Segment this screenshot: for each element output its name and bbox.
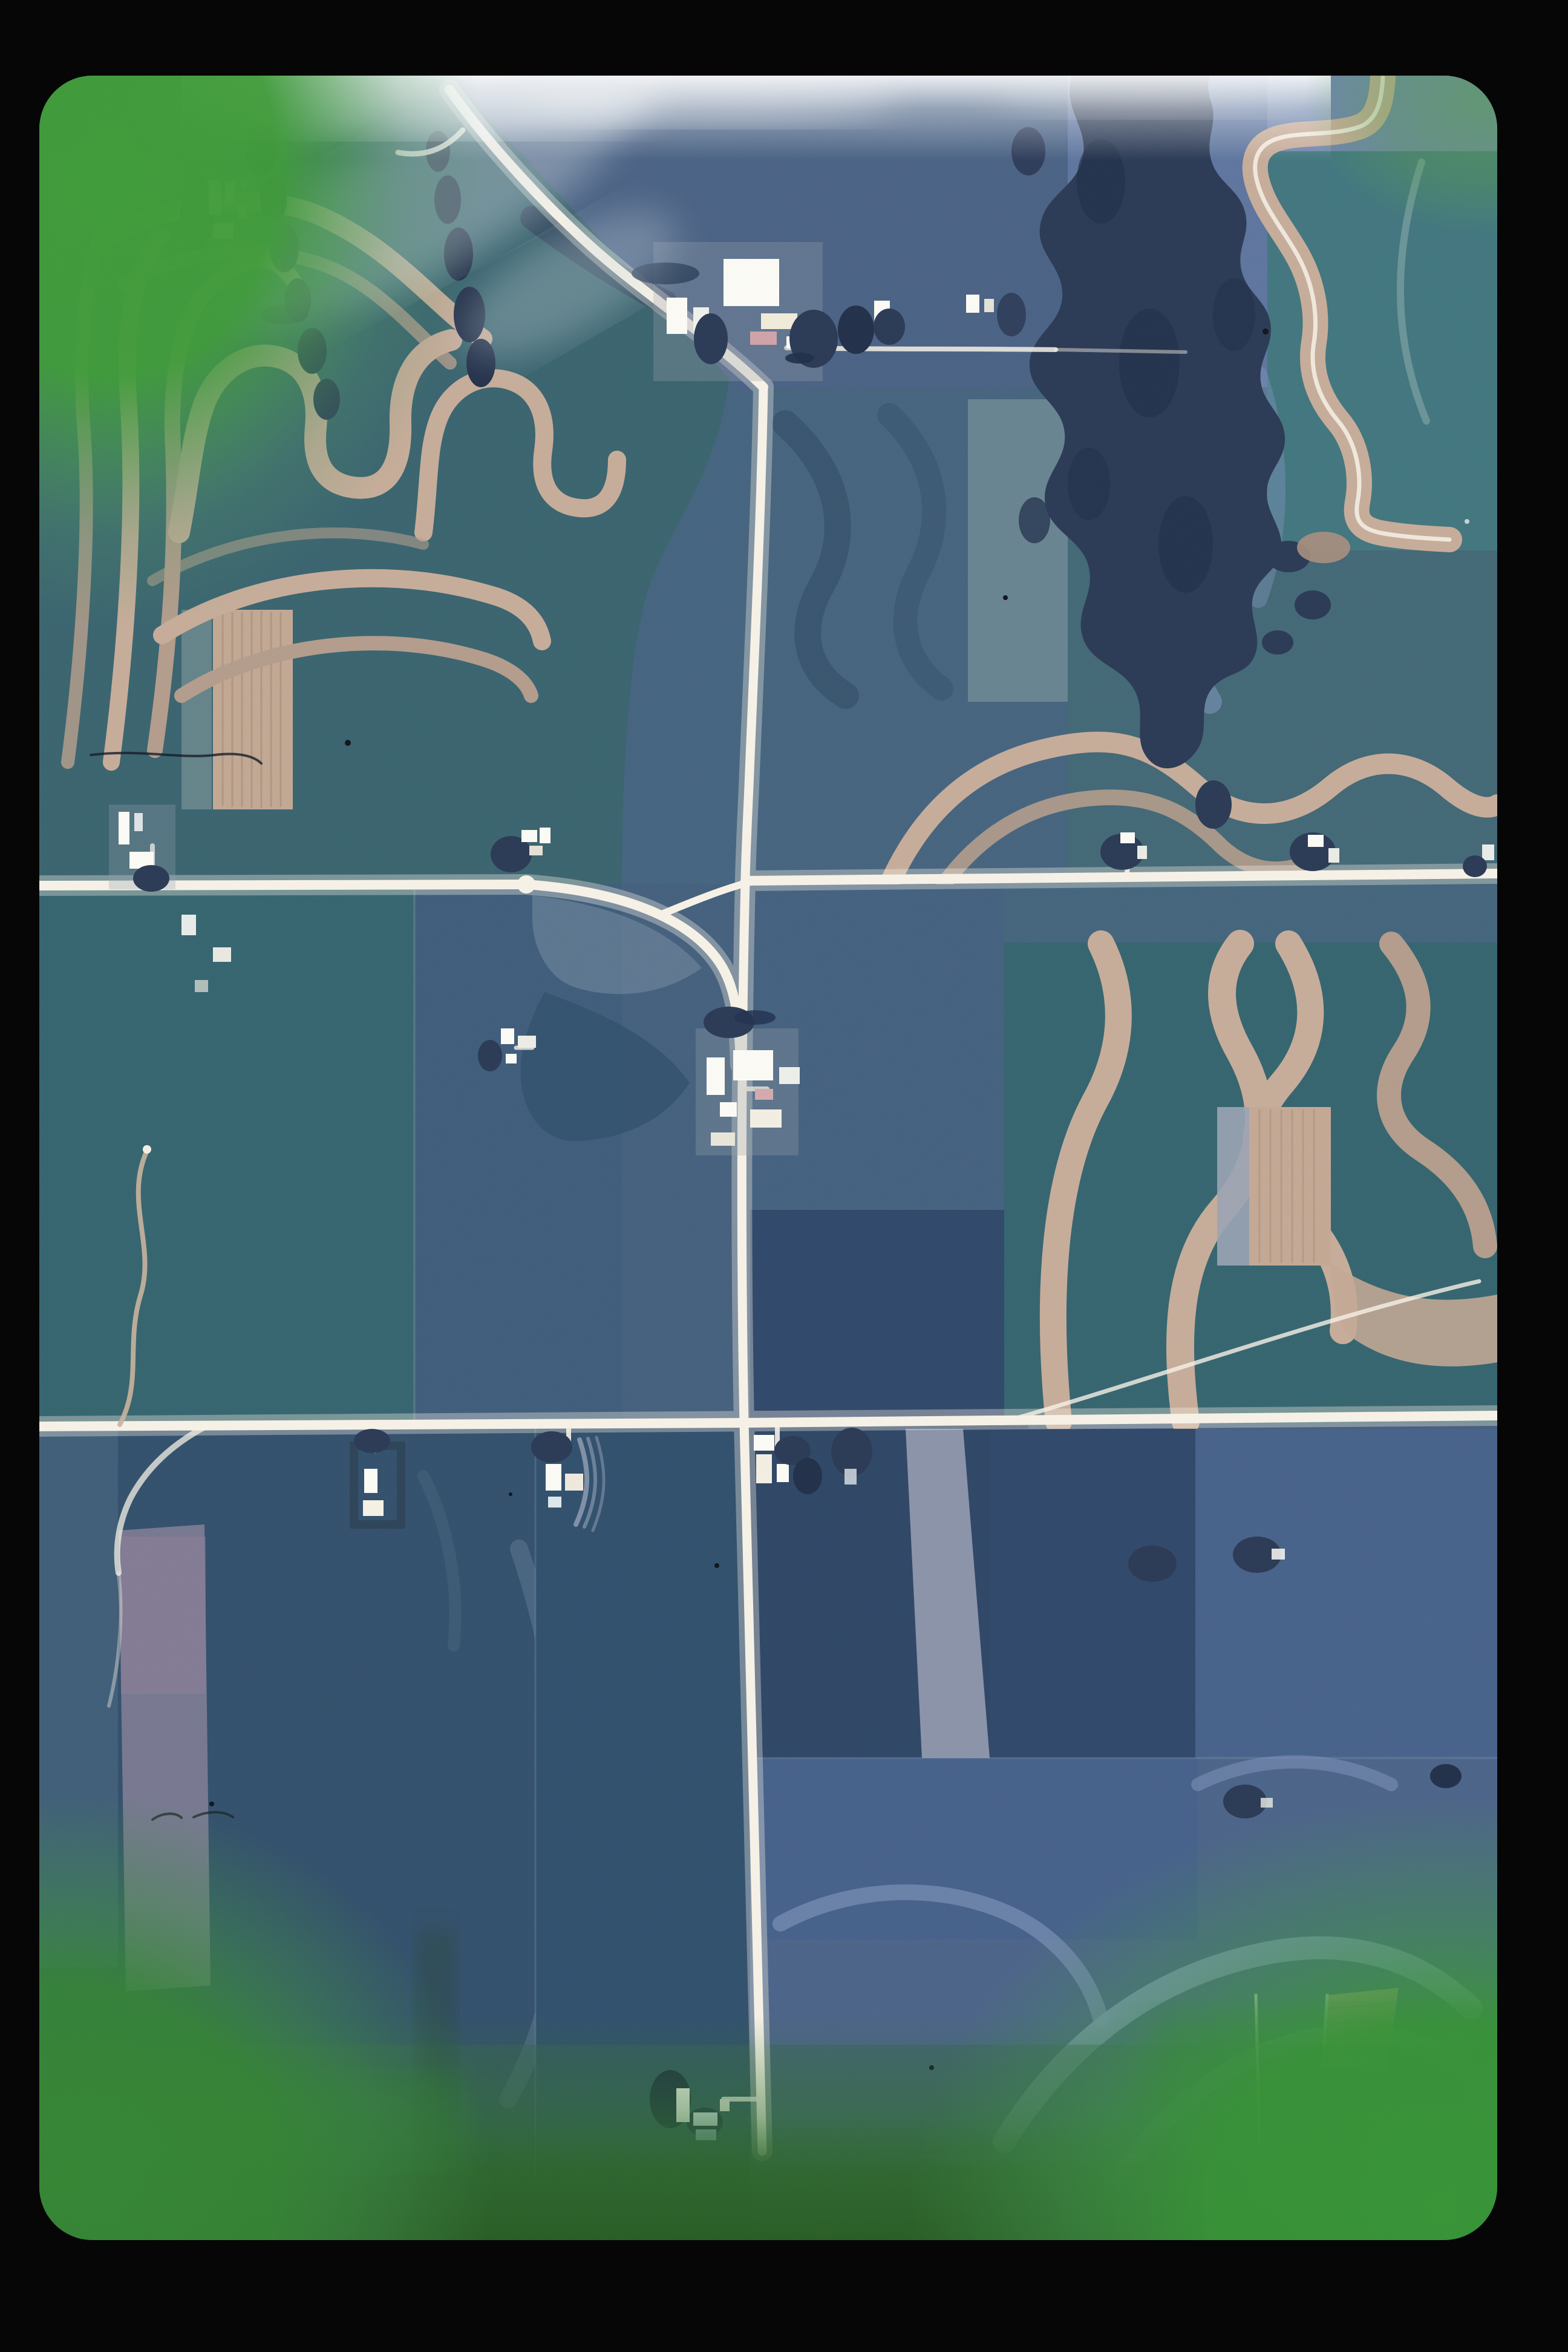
film-grain — [39, 76, 1497, 2240]
photo-frame — [39, 28, 1497, 2242]
aerial-photo — [0, 0, 1568, 2352]
slide-scan — [0, 0, 1568, 2352]
